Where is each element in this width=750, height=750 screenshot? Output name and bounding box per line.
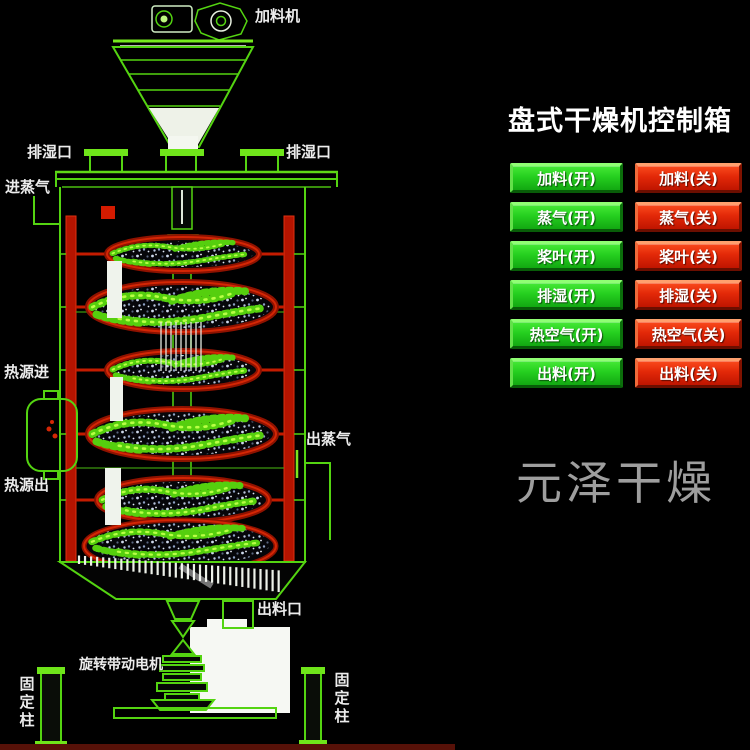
label-fixed-column-left: 固定柱 bbox=[18, 676, 35, 730]
button-discharge-on[interactable]: 出料(开) bbox=[510, 358, 623, 388]
feed-hopper bbox=[113, 47, 253, 149]
button-row-discharge: 出料(开) 出料(关) bbox=[510, 358, 742, 388]
control-panel-title: 盘式干燥机控制箱 bbox=[508, 99, 732, 138]
label-heat-source-in: 热源进 bbox=[4, 364, 49, 381]
label-heat-source-out: 热源出 bbox=[4, 477, 49, 494]
button-row-paddle: 桨叶(开) 桨叶(关) bbox=[510, 241, 742, 271]
button-paddle-on[interactable]: 桨叶(开) bbox=[510, 241, 623, 271]
label-feeder: 加料机 bbox=[255, 8, 300, 25]
label-steam-out: 出蒸气 bbox=[306, 431, 351, 448]
button-feed-on[interactable]: 加料(开) bbox=[510, 163, 623, 193]
button-hot-air-off[interactable]: 热空气(关) bbox=[635, 319, 742, 349]
steam-outlet-pipe bbox=[305, 463, 330, 540]
steam-inlet-valve bbox=[101, 206, 115, 219]
button-paddle-off[interactable]: 桨叶(关) bbox=[635, 241, 742, 271]
watermark: 元泽干燥 bbox=[516, 447, 716, 513]
button-row-feed: 加料(开) 加料(关) bbox=[510, 163, 742, 193]
button-row-dehumidify: 排湿(开) 排湿(关) bbox=[510, 280, 742, 310]
feeder-motor-icon bbox=[113, 3, 253, 46]
button-steam-on[interactable]: 蒸气(开) bbox=[510, 202, 623, 232]
screenshot-root: 加料机 排湿口 排湿口 进蒸气 热源进 热源出 出蒸气 出料口 旋转带动电机 固… bbox=[0, 0, 750, 750]
drying-disc bbox=[60, 409, 305, 459]
button-hot-air-on[interactable]: 热空气(开) bbox=[510, 319, 623, 349]
label-vent-left: 排湿口 bbox=[27, 144, 72, 161]
label-fixed-column-right: 固定柱 bbox=[333, 672, 350, 726]
button-discharge-off[interactable]: 出料(关) bbox=[635, 358, 742, 388]
button-dehumidify-on[interactable]: 排湿(开) bbox=[510, 280, 623, 310]
ground-strip bbox=[0, 744, 455, 750]
drying-disc bbox=[60, 478, 305, 522]
label-steam-in: 进蒸气 bbox=[5, 179, 50, 196]
drying-disc bbox=[60, 235, 305, 271]
label-vent-right: 排湿口 bbox=[286, 144, 331, 161]
button-row-hot-air: 热空气(开) 热空气(关) bbox=[510, 319, 742, 349]
button-row-steam: 蒸气(开) 蒸气(关) bbox=[510, 202, 742, 232]
button-steam-off[interactable]: 蒸气(关) bbox=[635, 202, 742, 232]
button-feed-off[interactable]: 加料(关) bbox=[635, 163, 742, 193]
drying-disc bbox=[60, 351, 305, 389]
button-dehumidify-off[interactable]: 排湿(关) bbox=[635, 280, 742, 310]
label-drive-motor: 旋转带动电机 bbox=[79, 658, 163, 673]
bottom-hopper bbox=[60, 556, 305, 600]
drying-disc bbox=[60, 282, 305, 332]
control-panel-buttons: 加料(开) 加料(关) 蒸气(开) 蒸气(关) 桨叶(开) 桨叶(关) 排湿(开… bbox=[510, 163, 742, 388]
label-discharge-port: 出料口 bbox=[257, 601, 302, 618]
